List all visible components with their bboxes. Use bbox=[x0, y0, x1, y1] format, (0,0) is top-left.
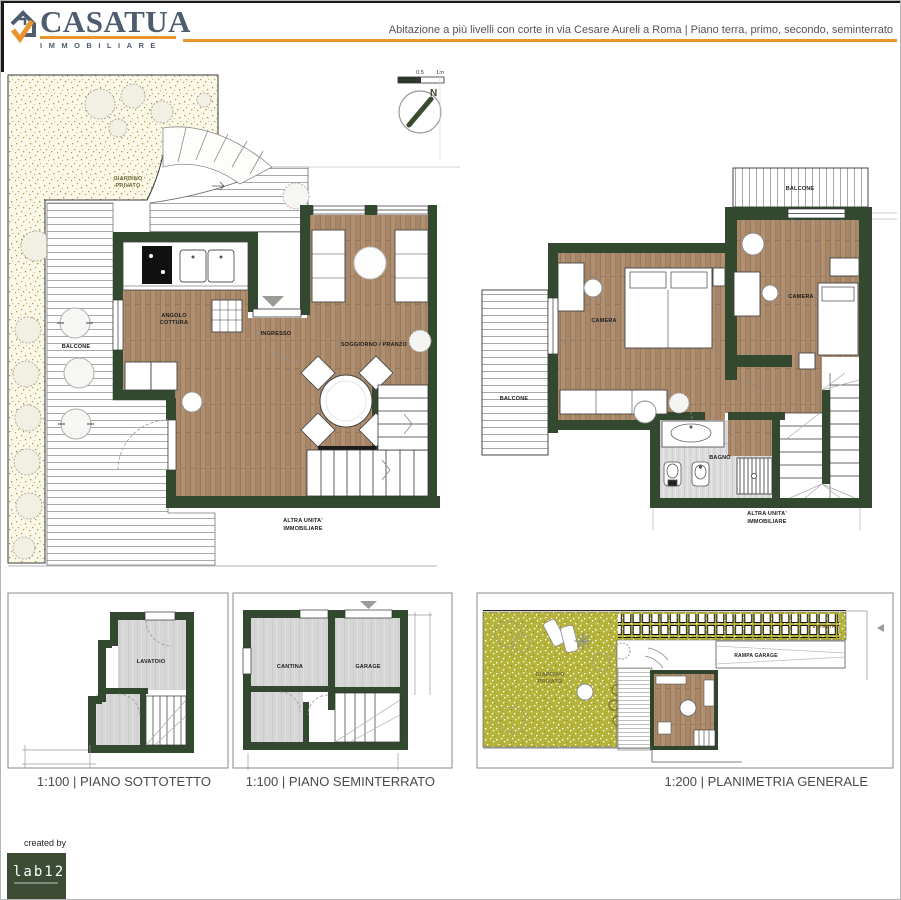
balcone-label-ground: BALCONE bbox=[62, 344, 91, 350]
brand-name: CASATUA bbox=[40, 9, 191, 35]
bagno-label: BAGNO bbox=[709, 455, 731, 461]
seminterrato-caption: 1:100 | PIANO SEMINTERRATO bbox=[246, 774, 435, 789]
garage-label: GARAGE bbox=[355, 664, 380, 670]
pergola-walkway bbox=[618, 614, 839, 638]
camera-right-label: CAMERA bbox=[788, 294, 813, 300]
lab12-logo: lab12 bbox=[7, 853, 66, 900]
camera-left-label: CAMERA bbox=[591, 318, 616, 324]
balcone-left-label: BALCONE bbox=[500, 396, 529, 402]
sofa-right bbox=[395, 230, 428, 302]
plan-seminterrato: CANTINA GARAGE 1:100 | PIANO SEMINTERRAT… bbox=[233, 593, 452, 789]
north-label: N bbox=[430, 88, 437, 99]
plan-sottotetto: LAVATOIO 1:100 | PIANO SOTTOTETTO bbox=[8, 593, 228, 789]
balcone-top-label: BALCONE bbox=[786, 186, 815, 192]
hall-floor bbox=[248, 318, 307, 496]
sink-right bbox=[208, 250, 234, 282]
sheet-title: Abitazione a più livelli con corte in vi… bbox=[389, 24, 893, 36]
giardino-generale-label: GIARDINO bbox=[535, 672, 565, 678]
page-left-border bbox=[0, 0, 4, 72]
toilet bbox=[664, 462, 681, 486]
plan-ground-floor: GIARDINO PRIVATO BALCONE bbox=[8, 75, 460, 566]
sofa-left bbox=[312, 230, 345, 302]
plan-first-floor: BALCONE BALCONE bbox=[482, 168, 897, 530]
svg-text:PRIVATO: PRIVATO bbox=[538, 679, 563, 685]
sink-left bbox=[180, 250, 206, 282]
page-top-border bbox=[0, 0, 901, 3]
lab12-tagline bbox=[14, 882, 58, 884]
plan-drawing: GIARDINO PRIVATO BALCONE bbox=[0, 0, 901, 900]
brand-subtitle: IMMOBILIARE bbox=[40, 41, 191, 50]
lavatoio-label: LAVATOIO bbox=[137, 659, 166, 665]
shower-radiator bbox=[737, 458, 772, 494]
angolo-cottura-label: ANGOLO bbox=[161, 313, 187, 319]
brand-logo: CASATUA IMMOBILIARE bbox=[8, 9, 191, 50]
lab12-name: lab12 bbox=[13, 864, 66, 880]
sottotetto-caption: 1:100 | PIANO SOTTOTETTO bbox=[37, 774, 211, 789]
balcony-left bbox=[482, 290, 548, 455]
svg-text:IMMOBILIARE: IMMOBILIARE bbox=[283, 526, 322, 532]
plant bbox=[409, 330, 431, 352]
oven bbox=[212, 300, 242, 332]
rampa-garage-label: RAMPA GARAGE bbox=[734, 653, 778, 659]
altra-unita-label-first: ALTRA UNITA' bbox=[747, 511, 787, 517]
coffee-table bbox=[354, 247, 386, 279]
svg-text:PRIVATO: PRIVATO bbox=[116, 183, 141, 189]
scale-half-label: 0.5 bbox=[416, 70, 424, 76]
plan-generale: ENTRATA RAMPA GARAGE GIARDINO PRIVATO bbox=[477, 593, 893, 789]
giardino-privato-label: GIARDINO bbox=[113, 176, 143, 182]
ingresso-label: INGRESSO bbox=[261, 331, 292, 337]
cantina-label: CANTINA bbox=[277, 664, 303, 670]
generale-caption: 1:200 | PLANIMETRIA GENERALE bbox=[664, 774, 868, 789]
header: CASATUA IMMOBILIARE Abitazione a più liv… bbox=[0, 0, 901, 60]
entrata-label: ENTRATA bbox=[813, 624, 836, 629]
desk bbox=[734, 272, 760, 316]
altra-unita-label-ground: ALTRA UNITA' bbox=[283, 518, 323, 524]
house-check-icon bbox=[8, 9, 38, 45]
seminterrato-stairs bbox=[335, 693, 400, 742]
soggiorno-label: SOGGIORNO / PRANZO bbox=[341, 342, 407, 348]
title-underline bbox=[183, 39, 897, 42]
compass: 0.5 1m N bbox=[398, 68, 444, 160]
svg-text:COTTURA: COTTURA bbox=[160, 320, 188, 326]
sottotetto-stairs bbox=[146, 696, 186, 745]
created-by-label: created by bbox=[24, 838, 66, 848]
compass-needle bbox=[409, 99, 431, 125]
bidet bbox=[692, 462, 709, 486]
svg-text:IMMOBILIARE: IMMOBILIARE bbox=[747, 519, 786, 525]
floorplan-sheet: GIARDINO PRIVATO BALCONE bbox=[0, 0, 901, 900]
cooktop bbox=[142, 246, 172, 284]
